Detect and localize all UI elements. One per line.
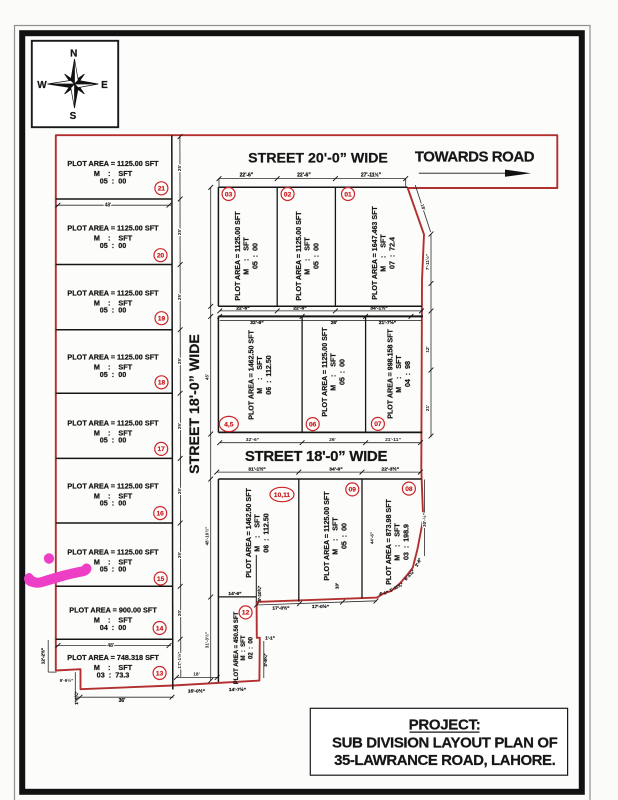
svg-text:17'-0½”: 17'-0½” — [272, 605, 290, 612]
svg-text:PLOT AREA = 748.318 SFT: PLOT AREA = 748.318 SFT — [67, 653, 159, 662]
svg-text:PLOT AREA = 450.56 SFT: PLOT AREA = 450.56 SFT — [234, 611, 240, 684]
svg-text:14'-6”: 14'-6” — [228, 591, 242, 597]
svg-text:34'-6”: 34'-6” — [329, 466, 343, 472]
svg-text:W: W — [37, 80, 47, 91]
svg-text:20: 20 — [157, 253, 165, 260]
svg-text:32'-6”: 32'-6” — [246, 437, 260, 443]
svg-text:21'-7½”: 21'-7½” — [379, 319, 397, 326]
svg-text:M : SFT: M : SFT — [330, 353, 338, 391]
svg-text:15: 15 — [157, 576, 165, 583]
svg-text:1'-1”: 1'-1” — [265, 635, 275, 640]
svg-text:32'-6”: 32'-6” — [250, 320, 264, 326]
svg-text:31'-1½”: 31'-1½” — [248, 465, 266, 472]
svg-text:22'-6”: 22'-6” — [236, 305, 250, 311]
svg-text:M : SFT: M : SFT — [256, 356, 264, 394]
svg-text:05 : 00: 05 : 00 — [100, 241, 127, 250]
svg-text:05 : 00: 05 : 00 — [100, 370, 127, 379]
svg-text:PLOT AREA = 1125.00 SFT: PLOT AREA = 1125.00 SFT — [67, 547, 159, 556]
svg-text:12'-2½”: 12'-2½” — [40, 648, 46, 664]
svg-text:05 : 00: 05 : 00 — [100, 306, 127, 315]
svg-text:PLOT AREA = 1125.00 SFT: PLOT AREA = 1125.00 SFT — [67, 288, 159, 297]
svg-text:21': 21' — [425, 405, 430, 411]
svg-text:05 : 00: 05 : 00 — [100, 436, 127, 445]
svg-text:S: S — [70, 111, 77, 122]
svg-text:PLOT AREA = 1125.00 SFT: PLOT AREA = 1125.00 SFT — [321, 327, 329, 417]
svg-text:SUB DIVISION LAYOUT PLAN OF: SUB DIVISION LAYOUT PLAN OF — [332, 735, 558, 752]
svg-text:18: 18 — [158, 380, 166, 387]
svg-text:17'-1½”: 17'-1½” — [176, 651, 183, 669]
svg-text:21: 21 — [158, 186, 166, 193]
svg-text:M : SFT: M : SFT — [332, 517, 340, 555]
svg-text:06: 06 — [309, 421, 317, 428]
svg-text:05 : 00: 05 : 00 — [340, 523, 348, 549]
svg-text:31'-3½”: 31'-3½” — [204, 632, 210, 648]
svg-text:TOWARDS ROAD: TOWARDS ROAD — [415, 148, 535, 165]
svg-text:07 : 72.4: 07 : 72.4 — [388, 237, 396, 269]
svg-text:4,5: 4,5 — [224, 421, 233, 428]
svg-text:05 : 00: 05 : 00 — [312, 243, 320, 269]
svg-text:PLOT AREA = 1647.463 SFT: PLOT AREA = 1647.463 SFT — [371, 206, 379, 300]
svg-text:M : SFT: M : SFT — [304, 237, 312, 275]
svg-text:25': 25' — [177, 294, 182, 300]
svg-text:03 : 198.9: 03 : 198.9 — [402, 524, 410, 560]
svg-text:22'-6”: 22'-6” — [240, 173, 254, 179]
svg-text:1'-6¼”: 1'-6¼” — [74, 691, 79, 704]
svg-text:PROJECT:: PROJECT: — [409, 717, 481, 734]
svg-text:12: 12 — [242, 610, 250, 617]
svg-text:26': 26' — [331, 320, 338, 326]
svg-text:13: 13 — [156, 670, 164, 677]
svg-text:PLOT AREA = 1462.50 SFT: PLOT AREA = 1462.50 SFT — [245, 488, 253, 578]
svg-text:7'-11½”: 7'-11½” — [424, 254, 430, 270]
svg-text:06 : 112.50: 06 : 112.50 — [262, 513, 270, 552]
svg-text:25': 25' — [177, 358, 182, 364]
svg-text:21'-11”: 21'-11” — [385, 437, 401, 443]
svg-text:14: 14 — [156, 625, 164, 632]
svg-text:25': 25' — [177, 552, 182, 558]
svg-text:25': 25' — [177, 165, 182, 171]
svg-text:03: 03 — [225, 191, 233, 198]
svg-text:16: 16 — [157, 510, 165, 517]
svg-text:03 : 73.3: 03 : 73.3 — [97, 670, 130, 679]
svg-text:04 : 98: 04 : 98 — [404, 361, 412, 387]
svg-text:05 : 00: 05 : 00 — [338, 359, 346, 385]
svg-text:02 : 00: 02 : 00 — [248, 636, 254, 659]
svg-text:M : SFT: M : SFT — [394, 523, 402, 561]
svg-text:09: 09 — [349, 487, 357, 494]
svg-text:15'-0½”: 15'-0½” — [188, 688, 206, 695]
svg-text:35-LAWRANCE ROAD, LAHORE.: 35-LAWRANCE ROAD, LAHORE. — [334, 752, 556, 769]
svg-text:14'-7½”: 14'-7½” — [229, 686, 247, 693]
svg-text:01: 01 — [344, 191, 352, 198]
svg-text:45': 45' — [205, 374, 210, 380]
svg-text:36': 36' — [119, 698, 126, 704]
svg-text:05 : 00: 05 : 00 — [100, 176, 127, 185]
svg-text:25': 25' — [177, 423, 182, 429]
svg-text:17: 17 — [158, 446, 166, 453]
svg-text:M : SFT: M : SFT — [241, 635, 247, 660]
svg-text:17'-0½”: 17'-0½” — [312, 603, 330, 610]
svg-text:3'-9¼”: 3'-9¼” — [263, 653, 268, 666]
svg-text:PLOT AREA = 1125.00 SFT: PLOT AREA = 1125.00 SFT — [67, 224, 159, 233]
svg-text:34'-1½”: 34'-1½” — [370, 304, 388, 311]
svg-text:PLOT AREA = 1125.00 SFT: PLOT AREA = 1125.00 SFT — [234, 211, 242, 301]
svg-text:PLOT AREA = 873.98 SFT: PLOT AREA = 873.98 SFT — [385, 499, 393, 585]
svg-text:N: N — [70, 49, 77, 60]
svg-text:27'-11½”: 27'-11½” — [361, 172, 382, 179]
svg-text:48'-10½”: 48'-10½” — [204, 527, 210, 546]
svg-text:18': 18' — [193, 672, 199, 678]
svg-text:PLOT AREA = 998.158 SFT: PLOT AREA = 998.158 SFT — [387, 329, 395, 419]
svg-text:05 : 00: 05 : 00 — [100, 499, 127, 508]
svg-text:10,11: 10,11 — [274, 492, 290, 499]
svg-text:06 : 112.50: 06 : 112.50 — [265, 355, 273, 394]
svg-text:07: 07 — [374, 421, 382, 428]
svg-text:9'-9½”: 9'-9½” — [60, 677, 74, 683]
svg-text:12': 12' — [425, 346, 430, 352]
svg-text:PLOT AREA = 1125.00 SFT: PLOT AREA = 1125.00 SFT — [67, 353, 159, 362]
svg-text:5'-10¾”: 5'-10¾” — [257, 586, 262, 602]
svg-text:08: 08 — [405, 486, 413, 493]
svg-text:PLOT AREA = 1125.00 SFT: PLOT AREA = 1125.00 SFT — [323, 491, 331, 581]
svg-text:M : SFT: M : SFT — [243, 237, 251, 275]
svg-text:19: 19 — [158, 316, 166, 323]
svg-text:25': 25' — [177, 488, 182, 494]
svg-text:22'-3½”: 22'-3½” — [382, 465, 400, 472]
svg-text:PLOT AREA = 1125.00 SFT: PLOT AREA = 1125.00 SFT — [67, 418, 159, 427]
svg-text:44'-6”: 44'-6” — [369, 532, 374, 545]
svg-text:05 : 00: 05 : 00 — [100, 565, 127, 574]
svg-text:M : SFT: M : SFT — [395, 355, 403, 393]
svg-text:PLOT AREA = 900.00 SFT: PLOT AREA = 900.00 SFT — [69, 606, 157, 615]
svg-text:PLOT AREA = 1125.00 SFT: PLOT AREA = 1125.00 SFT — [295, 211, 303, 301]
svg-text:PLOT AREA = 1462.50 SFT: PLOT AREA = 1462.50 SFT — [248, 330, 256, 420]
svg-text:48': 48' — [107, 643, 114, 649]
svg-text:48': 48' — [105, 203, 112, 209]
svg-text:05 : 00: 05 : 00 — [251, 243, 259, 269]
svg-text:02: 02 — [284, 191, 292, 198]
svg-text:22'-6”: 22'-6” — [293, 305, 307, 311]
svg-text:PLOT AREA = 1125.00 SFT: PLOT AREA = 1125.00 SFT — [67, 481, 159, 490]
svg-text:04 : 00: 04 : 00 — [100, 623, 127, 632]
svg-text:STREET 18'-0” WIDE: STREET 18'-0” WIDE — [245, 448, 388, 465]
svg-text:M : SFT: M : SFT — [380, 234, 388, 272]
svg-text:30'-½”: 30'-½” — [421, 513, 427, 527]
svg-text:STREET 18'-0” WIDE: STREET 18'-0” WIDE — [187, 334, 203, 474]
svg-text:10': 10' — [335, 583, 340, 589]
svg-text:STREET 20'-0” WIDE: STREET 20'-0” WIDE — [248, 151, 388, 167]
svg-text:25': 25' — [177, 229, 182, 235]
svg-text:22'-6”: 22'-6” — [297, 173, 311, 179]
svg-text:20': 20' — [177, 610, 182, 616]
svg-text:PLOT AREA = 1125.00 SFT: PLOT AREA = 1125.00 SFT — [67, 159, 159, 168]
svg-text:26': 26' — [329, 437, 336, 443]
svg-text:E: E — [101, 80, 108, 91]
svg-text:M : SFT: M : SFT — [254, 514, 262, 552]
